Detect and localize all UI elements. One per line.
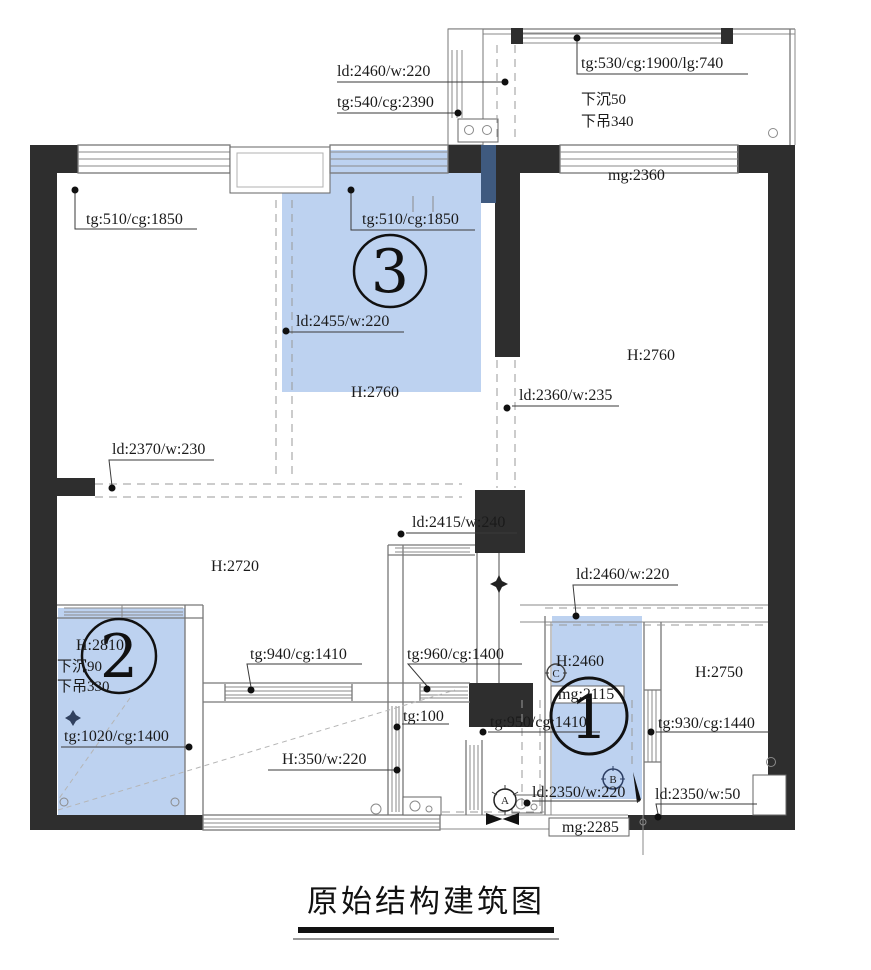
label-tg510-mid: tg:510/cg:1850	[362, 211, 459, 228]
label-tg540: tg:540/cg:2390	[337, 94, 434, 111]
cabinet	[753, 775, 786, 815]
hinge-circle	[769, 129, 778, 138]
label-tg940: tg:940/cg:1410	[250, 646, 347, 663]
label-ceiling330: 下吊330	[57, 678, 110, 695]
star-symbol	[490, 575, 508, 593]
label-tg950: tg:950/cg:1410	[490, 714, 587, 731]
title-block: 原始结构建筑图	[293, 884, 559, 939]
title-underline-thick	[298, 927, 554, 933]
compass-a-letter: A	[501, 795, 509, 807]
label-ld2370: ld:2370/w:230	[112, 441, 205, 458]
label-tg530: tg:530/cg:1900/lg:740	[581, 55, 723, 72]
label-ld2360: ld:2360/w:235	[519, 387, 612, 404]
label-tg960: tg:960/cg:1400	[407, 646, 504, 663]
region-3-wall-overlay	[481, 145, 496, 203]
label-h2460: H:2460	[556, 653, 604, 670]
sink-fixture	[403, 797, 441, 815]
label-mg2115: mg:2115	[558, 686, 614, 703]
label-h2810: H:2810	[76, 637, 124, 654]
label-mg2360: mg:2360	[608, 167, 665, 184]
label-sink50: 下沉50	[581, 91, 626, 108]
label-tg510-left: tg:510/cg:1850	[86, 211, 183, 228]
label-ld2350-220: ld:2350/w:220	[532, 784, 625, 801]
region-3-number: 3	[371, 237, 409, 307]
label-tg100: tg:100	[403, 708, 444, 725]
floorplan-drawing: A B C 3 2 1 ld:2460/w:220	[0, 0, 871, 970]
label-ld2460-top: ld:2460/w:220	[337, 63, 430, 80]
label-sink90: 下沉90	[57, 658, 102, 675]
label-ld2415: ld:2415/w:240	[412, 514, 505, 531]
label-h2750: H:2750	[695, 664, 743, 681]
washing-machine	[458, 119, 498, 142]
label-ld2350-50: ld:2350/w:50	[655, 786, 740, 803]
wardrobe-recess	[230, 147, 330, 193]
floorplan-canvas: A B C 3 2 1 ld:2460/w:220	[0, 0, 871, 970]
label-mg2285: mg:2285	[562, 819, 619, 836]
label-tg930: tg:930/cg:1440	[658, 715, 755, 732]
label-h2720: H:2720	[211, 558, 259, 575]
label-ld2460-right: ld:2460/w:220	[576, 566, 669, 583]
label-tg1020: tg:1020/cg:1400	[64, 728, 169, 745]
label-h350: H:350/w:220	[282, 751, 366, 768]
label-ld2455: ld:2455/w:220	[296, 313, 389, 330]
label-h2760-right: H:2760	[627, 347, 675, 364]
drawing-title: 原始结构建筑图	[307, 884, 545, 919]
label-h2760-mid: H:2760	[351, 384, 399, 401]
label-ceiling340: 下吊340	[581, 113, 634, 130]
